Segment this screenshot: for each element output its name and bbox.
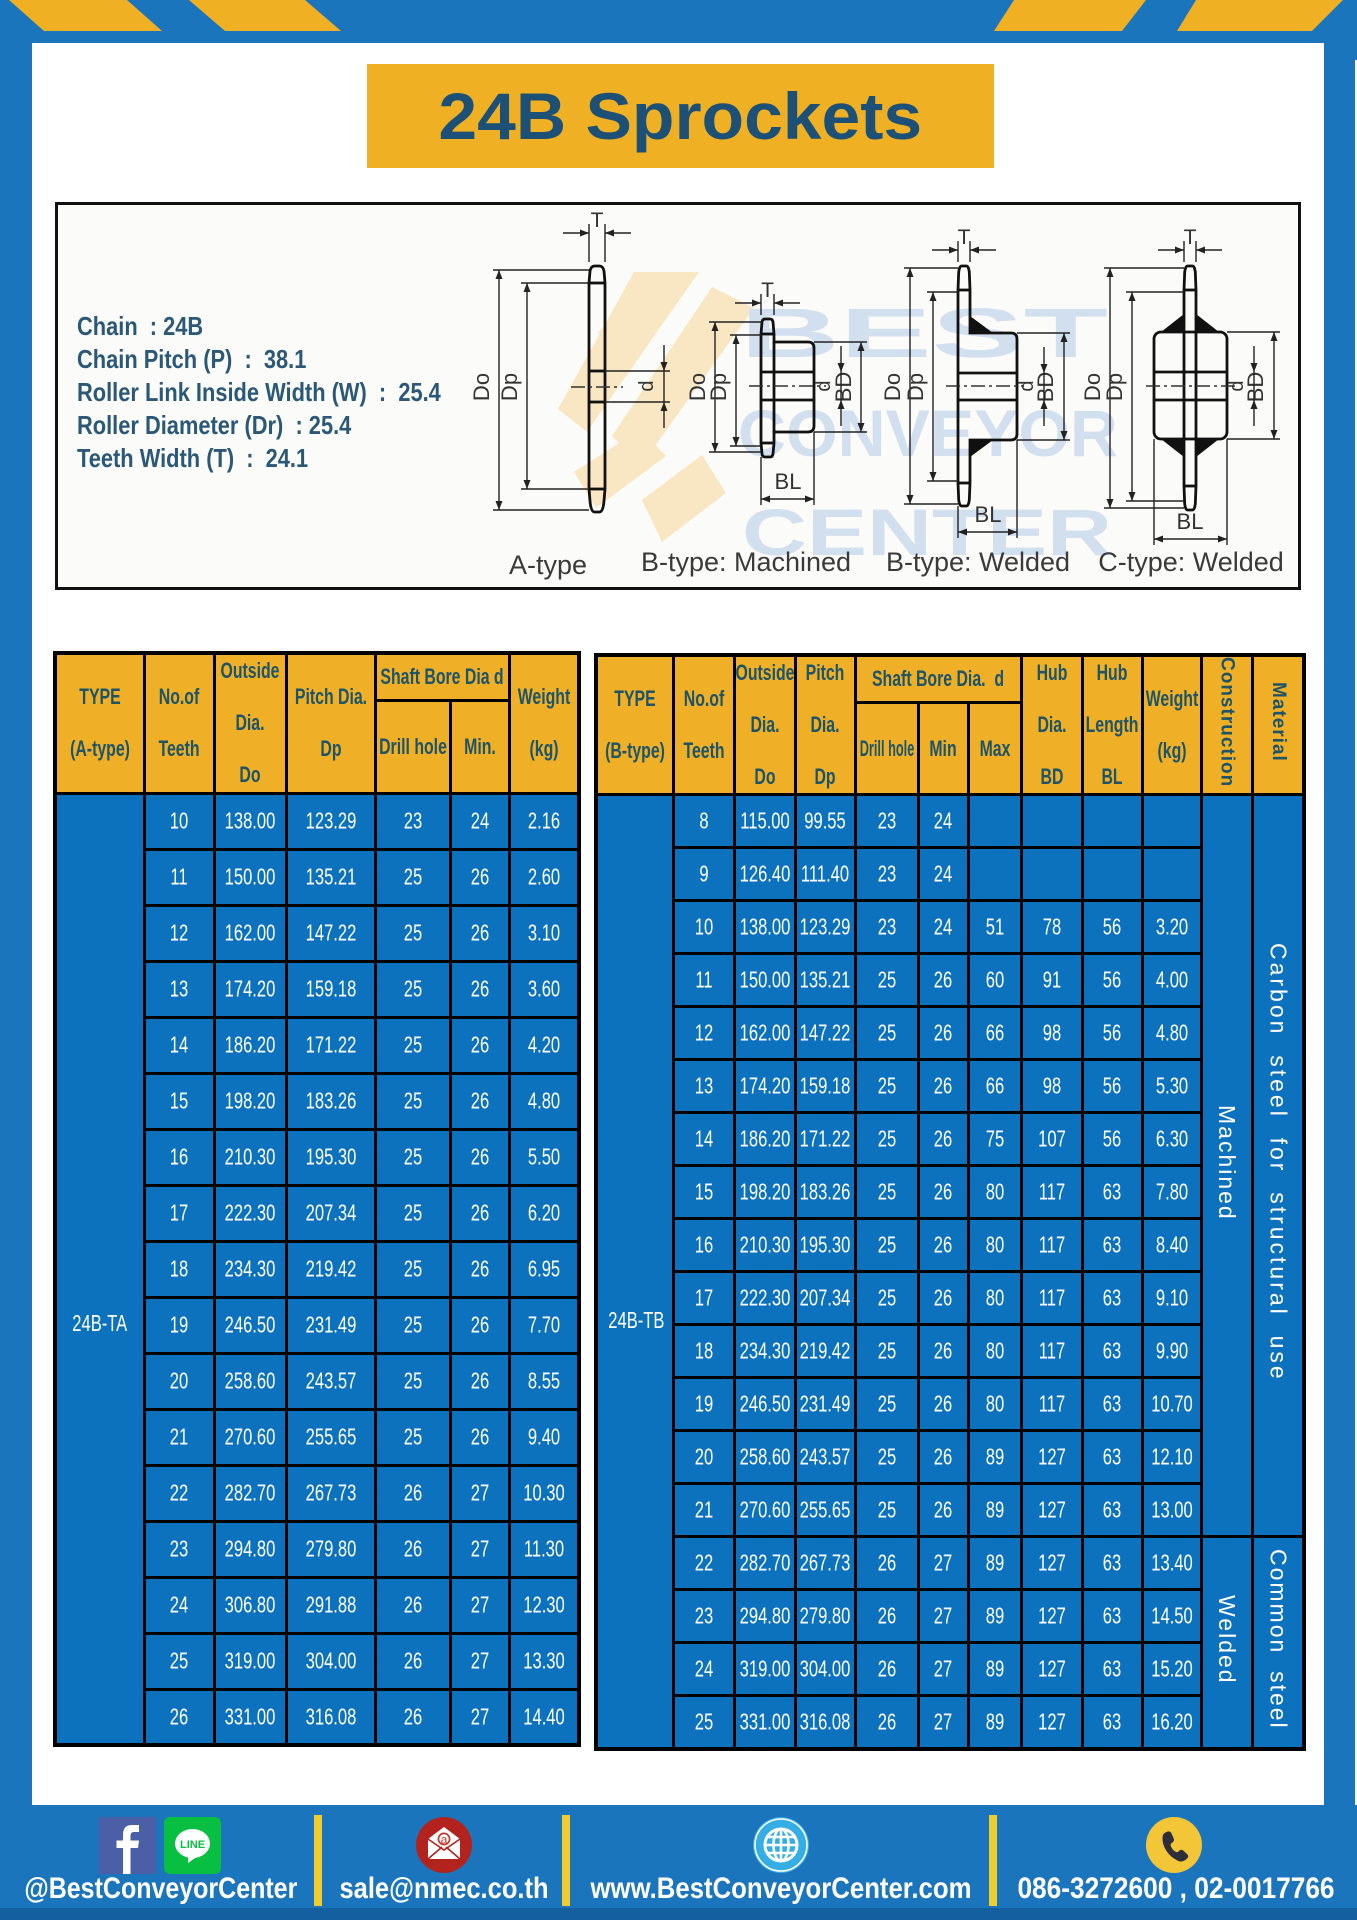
svg-text:a: a — [441, 1833, 448, 1847]
svg-text:LINE: LINE — [180, 1839, 205, 1851]
svg-text:T: T — [958, 226, 971, 249]
svg-text:d: d — [636, 380, 658, 391]
svg-text:Dp: Dp — [706, 373, 731, 401]
svg-text:Do: Do — [880, 373, 905, 401]
svg-text:C-type: Welded: C-type: Welded — [1098, 547, 1284, 577]
svg-text:BL: BL — [975, 502, 1002, 527]
svg-text:Dp: Dp — [497, 373, 522, 401]
svg-text:Do: Do — [469, 373, 494, 401]
svg-text:BL: BL — [1177, 509, 1204, 534]
svg-text:B-type: Machined: B-type: Machined — [641, 547, 851, 577]
svg-text:d: d — [1016, 380, 1038, 391]
svg-text:T: T — [761, 279, 774, 302]
svg-text:T: T — [591, 209, 604, 232]
svg-text:d: d — [1226, 380, 1248, 391]
svg-text:B-type: Welded: B-type: Welded — [886, 547, 1070, 577]
svg-text:A-type: A-type — [509, 550, 587, 580]
svg-text:T: T — [1184, 226, 1197, 249]
svg-text:Dp: Dp — [1102, 373, 1127, 401]
svg-text:BL: BL — [775, 469, 802, 494]
svg-text:Dp: Dp — [903, 373, 928, 401]
svg-text:d: d — [813, 380, 835, 391]
